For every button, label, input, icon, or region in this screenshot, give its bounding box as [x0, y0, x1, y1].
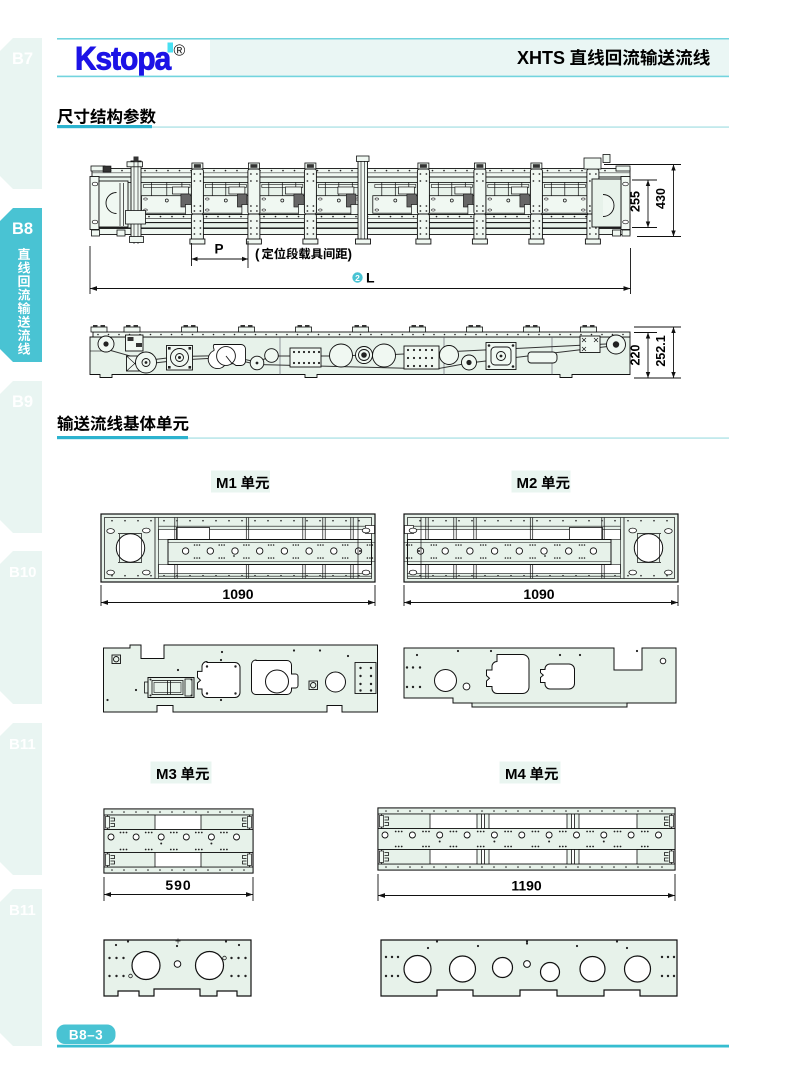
svg-text:XHTS: XHTS: [517, 48, 565, 68]
svg-text:1090: 1090: [222, 586, 253, 602]
svg-text:B8–3: B8–3: [69, 1028, 103, 1043]
svg-text:P: P: [214, 242, 223, 257]
svg-text:255: 255: [629, 191, 643, 212]
svg-text:M3: M3: [156, 766, 177, 783]
svg-text:M4: M4: [505, 766, 526, 783]
svg-text:B11: B11: [9, 902, 36, 919]
svg-text:2: 2: [355, 273, 360, 283]
svg-text:L: L: [366, 270, 375, 286]
svg-text:B8: B8: [12, 220, 33, 238]
svg-text:590: 590: [165, 877, 191, 893]
svg-text:B9: B9: [12, 393, 33, 411]
svg-text:B11: B11: [9, 736, 36, 753]
svg-text:): ): [348, 247, 353, 262]
svg-text:430: 430: [654, 188, 668, 209]
svg-text:Kstopa: Kstopa: [75, 41, 172, 77]
svg-text:B7: B7: [12, 50, 33, 68]
svg-text:B10: B10: [9, 564, 37, 581]
svg-text:M2: M2: [517, 475, 538, 492]
svg-text:(: (: [255, 247, 260, 262]
svg-text:252.1: 252.1: [654, 335, 668, 366]
svg-text:220: 220: [629, 345, 643, 366]
svg-text:M1: M1: [216, 475, 237, 492]
svg-text:1190: 1190: [511, 878, 542, 894]
svg-text:®: ®: [174, 43, 186, 60]
svg-text:1090: 1090: [523, 586, 554, 602]
